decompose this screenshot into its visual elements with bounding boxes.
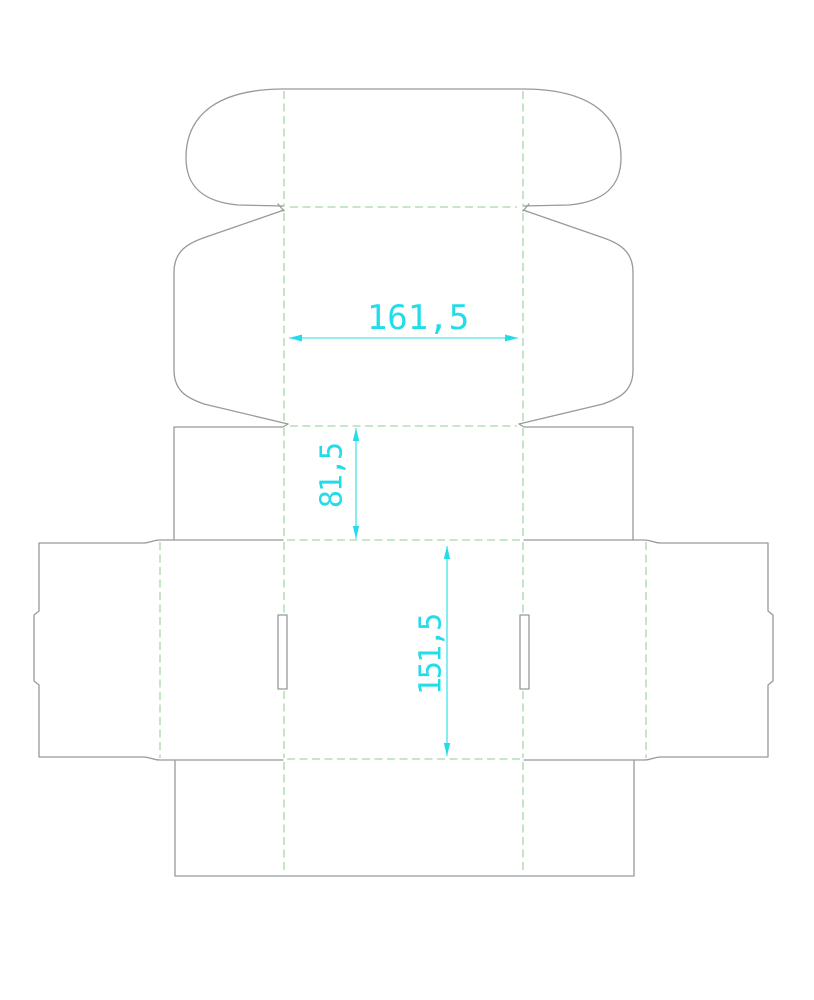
- bottom-band-outline: [175, 761, 634, 876]
- box-dieline-svg: 161,5 81,5 151,5: [0, 0, 814, 1000]
- dimension-lid-depth-arrow-top: [353, 428, 359, 441]
- dimension-length-label: 151,5: [414, 615, 449, 695]
- dimension-lid-depth-arrow-bottom: [353, 526, 359, 539]
- lid-band-right-edge: [519, 424, 633, 540]
- main-band-right-outline: [524, 540, 773, 760]
- dieline-drawing-canvas: 161,5 81,5 151,5: [0, 0, 814, 1000]
- lid-right-ear-outline: [519, 210, 633, 424]
- dimension-width: 161,5: [289, 298, 518, 342]
- dimension-length-arrow-bottom: [444, 743, 450, 756]
- dimension-width-label: 161,5: [367, 298, 469, 338]
- dimension-width-arrow-left: [289, 335, 302, 342]
- main-band-left-outline: [34, 540, 283, 760]
- dimension-lid-depth: 81,5: [315, 428, 360, 539]
- fold-lines: [160, 91, 646, 874]
- dimension-length: 151,5: [414, 546, 451, 756]
- lid-band-left-edge: [174, 424, 288, 540]
- lid-left-ear-outline: [174, 210, 288, 424]
- top-tuck-flap-outline: [186, 89, 621, 206]
- dimension-lid-depth-label: 81,5: [315, 444, 350, 508]
- left-lock-slot: [278, 615, 287, 689]
- dimension-length-arrow-top: [444, 546, 450, 559]
- dimension-width-arrow-right: [505, 335, 518, 342]
- right-lock-slot: [520, 615, 529, 689]
